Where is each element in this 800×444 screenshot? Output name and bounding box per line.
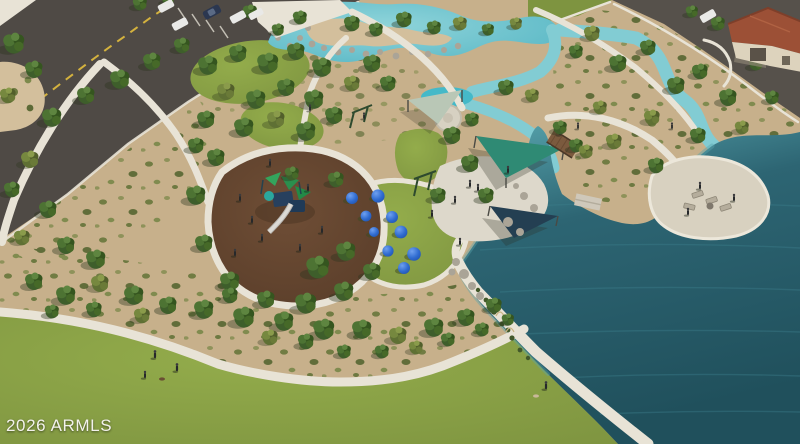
shore-dog bbox=[533, 394, 539, 397]
park-scene bbox=[0, 0, 800, 444]
watermark: 2026 ARMLS bbox=[6, 416, 112, 436]
fire-pit bbox=[707, 203, 714, 210]
garage-door bbox=[750, 48, 766, 61]
aerial-rendering: 2026 ARMLS bbox=[0, 0, 800, 444]
dog bbox=[159, 377, 165, 380]
